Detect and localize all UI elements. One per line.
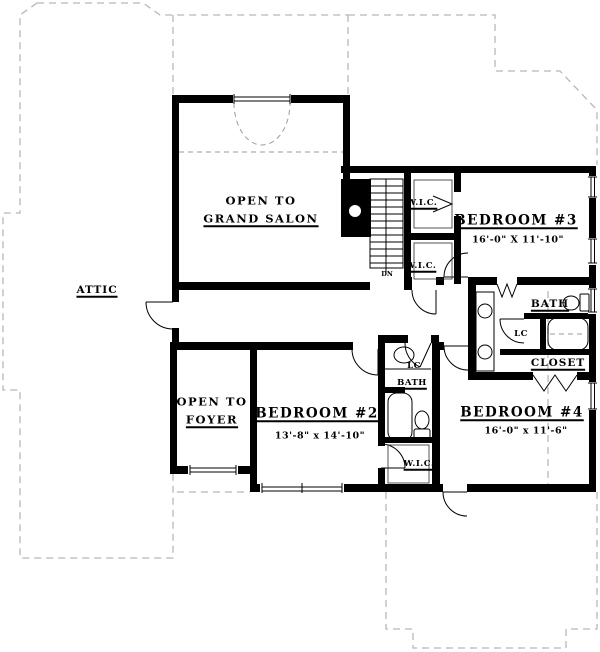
bedroom2-label: BEDROOM #2: [255, 407, 379, 421]
floor-plan: ATTIC OPEN TO GRAND SALON OPEN TO FOYER …: [0, 0, 600, 652]
bathtub-shared-bath: [548, 318, 588, 350]
bedroom4-entry-door: [444, 346, 468, 370]
wic-lower-door: [412, 290, 436, 314]
ceiling-break-lines: [179, 103, 343, 152]
grand-salon-label: GRAND SALON: [203, 213, 318, 225]
wic-lower-label: W.I.C.: [406, 262, 437, 271]
stairs-down-label: DN: [381, 271, 393, 278]
window-grand-salon: [233, 94, 291, 104]
bath-shared-label: BATH: [531, 299, 569, 310]
staircase: [370, 179, 403, 272]
bedroom4-attic-access-door: [443, 492, 467, 516]
bedroom2-entry-door: [352, 349, 378, 375]
closet-bifold-doors: [533, 375, 577, 391]
wic-bedroom2-door: [381, 444, 405, 468]
foyer-open-to: OPEN TO: [176, 396, 247, 408]
window-bedroom3-lower: [588, 238, 597, 265]
bath-hall-label: BATH: [397, 379, 427, 388]
floor-plan-drawing: [0, 0, 600, 652]
bedroom2-dimensions: 13'-8" x 14'-10": [275, 431, 365, 441]
bedroom3-dimensions: 16'-0" X 11'-10": [472, 235, 564, 245]
window-bedroom4: [588, 382, 597, 410]
shared-bath-opening: [497, 284, 517, 297]
double-vanity-sinks: [476, 292, 494, 371]
window-foyer: [188, 465, 238, 475]
grand-salon-open-to: OPEN TO: [225, 195, 296, 207]
foyer-label: FOYER: [186, 414, 238, 426]
wic-upper-label: W.I.C.: [407, 199, 438, 208]
arched-opening-dashed: [234, 103, 290, 145]
attic-label: ATTIC: [76, 285, 117, 296]
bathtub-hall-bath: [388, 393, 412, 441]
linen-shared-label: LC: [514, 330, 528, 339]
closet-label: CLOSET: [531, 358, 585, 369]
bedroom4-dimensions: 16'-0" x 11'-6": [484, 426, 567, 436]
window-bedroom3-upper: [588, 176, 597, 198]
bedroom3-label: BEDROOM #3: [454, 214, 578, 228]
bedroom4-label: BEDROOM #4: [460, 406, 584, 420]
fireplace: [341, 179, 371, 237]
window-bedroom2: [260, 483, 344, 493]
wic-bedroom2-label: W.I.C.: [404, 460, 435, 469]
toilet-hall-bath: [414, 411, 430, 441]
linen-hall-label: LC: [407, 362, 421, 371]
attic-door: [146, 302, 173, 329]
